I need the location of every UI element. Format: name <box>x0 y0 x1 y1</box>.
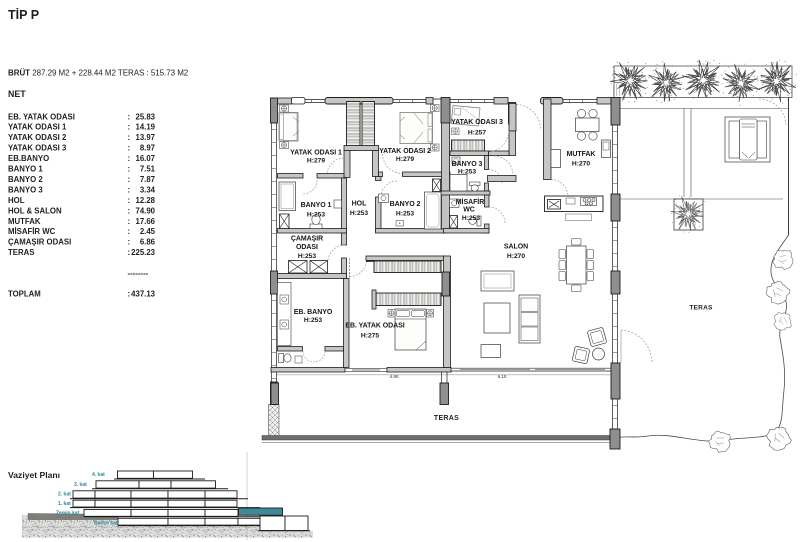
svg-text::: : <box>128 248 131 257</box>
svg-text:HOL: HOL <box>352 201 367 208</box>
svg-text:2. kat: 2. kat <box>58 492 71 498</box>
svg-text:MİSAFİR: MİSAFİR <box>456 198 484 206</box>
svg-text::: : <box>128 175 131 184</box>
svg-text:H:279: H:279 <box>396 156 414 163</box>
svg-text:--------: -------- <box>128 269 149 278</box>
svg-text:EB. YATAK ODASI: EB. YATAK ODASI <box>345 323 404 330</box>
svg-text::: : <box>128 133 131 142</box>
svg-text:BANYO 3: BANYO 3 <box>452 161 483 168</box>
svg-text:YATAK ODASI 2: YATAK ODASI 2 <box>8 133 67 142</box>
svg-text:1. kat: 1. kat <box>58 501 71 507</box>
svg-text:YATAK ODASI 2: YATAK ODASI 2 <box>379 148 431 155</box>
svg-text:17.66: 17.66 <box>135 217 155 226</box>
svg-text:BANYO 3: BANYO 3 <box>8 185 43 194</box>
svg-text::: : <box>128 144 131 153</box>
svg-text:H:253: H:253 <box>462 215 480 222</box>
svg-text:YATAK ODASI 3: YATAK ODASI 3 <box>451 119 503 126</box>
svg-text::: : <box>128 165 131 174</box>
svg-text::: : <box>128 238 131 247</box>
svg-text:74.90: 74.90 <box>135 206 155 215</box>
svg-text::: : <box>128 154 131 163</box>
svg-text:TERAS: TERAS <box>434 415 459 422</box>
svg-text:Zemin kat: Zemin kat <box>56 510 80 516</box>
svg-text:H:275: H:275 <box>361 333 379 340</box>
svg-text:MUTFAK: MUTFAK <box>567 151 596 158</box>
svg-text:YATAK ODASI 3: YATAK ODASI 3 <box>8 144 67 153</box>
svg-text:NET: NET <box>8 89 26 99</box>
svg-text:2.45: 2.45 <box>140 227 156 236</box>
svg-text::: : <box>128 290 131 299</box>
svg-text:BANYO 2: BANYO 2 <box>8 175 43 184</box>
svg-text:3.34: 3.34 <box>140 185 156 194</box>
svg-text::: : <box>128 206 131 215</box>
svg-text:HOL: HOL <box>8 196 25 205</box>
svg-text:SALON: SALON <box>504 244 528 251</box>
svg-text:WC: WC <box>463 207 475 214</box>
svg-text:YATAK ODASI 1: YATAK ODASI 1 <box>8 123 67 132</box>
svg-text::: : <box>128 217 131 226</box>
svg-text:MİSAFİR WC: MİSAFİR WC <box>8 227 56 236</box>
svg-text:12.28: 12.28 <box>135 196 155 205</box>
svg-text:4. kat: 4. kat <box>92 472 105 478</box>
svg-text:25.83: 25.83 <box>135 112 155 121</box>
svg-text:16.07: 16.07 <box>135 154 155 163</box>
svg-text:H:257: H:257 <box>468 130 486 137</box>
svg-text:BRÜT 287.29 M2 + 228.44 M2 TER: BRÜT 287.29 M2 + 228.44 M2 TERAS : 515.7… <box>8 69 189 78</box>
svg-text::: : <box>128 112 131 121</box>
svg-text:H:279: H:279 <box>307 158 325 165</box>
svg-text:7.51: 7.51 <box>140 165 156 174</box>
svg-text::: : <box>128 196 131 205</box>
svg-text:Bahçe katı: Bahçe katı <box>94 521 120 527</box>
svg-text:BANYO 2: BANYO 2 <box>390 201 421 208</box>
svg-text:H:253: H:253 <box>298 253 316 260</box>
svg-text:TOPLAM: TOPLAM <box>8 290 41 299</box>
svg-text:H:253: H:253 <box>307 212 325 219</box>
svg-text:7.87: 7.87 <box>140 175 155 184</box>
svg-text:EB. BANYO: EB. BANYO <box>294 309 333 316</box>
svg-text:BANYO 1: BANYO 1 <box>301 202 332 209</box>
svg-text:TERAS: TERAS <box>8 248 34 257</box>
svg-text:H:253: H:253 <box>458 169 476 176</box>
svg-text:H:253: H:253 <box>396 211 414 218</box>
svg-text:437.13: 437.13 <box>131 290 156 299</box>
svg-text:EB. YATAK ODASI: EB. YATAK ODASI <box>8 112 75 121</box>
svg-text:TERAS: TERAS <box>689 305 713 312</box>
svg-text:YATAK ODASI 1: YATAK ODASI 1 <box>290 150 342 157</box>
svg-text:ODASI: ODASI <box>296 244 318 251</box>
svg-text:ÇAMAŞIR: ÇAMAŞIR <box>291 236 323 243</box>
svg-text::: : <box>128 185 131 194</box>
svg-text:6.86: 6.86 <box>140 238 156 247</box>
svg-text:3. kat: 3. kat <box>74 482 87 488</box>
svg-text:8.97: 8.97 <box>140 144 155 153</box>
svg-text:H:270: H:270 <box>507 253 525 260</box>
svg-text:TİP P: TİP P <box>8 7 39 22</box>
svg-text::: : <box>128 123 131 132</box>
svg-text:BANYO 1: BANYO 1 <box>8 165 43 174</box>
svg-text:H:270: H:270 <box>572 161 590 168</box>
svg-text:ÇAMAŞIR ODASI: ÇAMAŞIR ODASI <box>8 238 71 247</box>
svg-text:HOL & SALON: HOL & SALON <box>8 206 62 215</box>
svg-text:Vaziyet Planı: Vaziyet Planı <box>8 470 60 480</box>
svg-text:H:253: H:253 <box>304 317 322 324</box>
svg-text::: : <box>128 227 131 236</box>
svg-text:H:253: H:253 <box>350 210 368 217</box>
svg-text:EB.BANYO: EB.BANYO <box>8 154 49 163</box>
svg-text:14.19: 14.19 <box>135 123 155 132</box>
svg-text:13.97: 13.97 <box>135 133 155 142</box>
svg-text:225.23: 225.23 <box>131 248 156 257</box>
svg-text:MUTFAK: MUTFAK <box>8 217 41 226</box>
